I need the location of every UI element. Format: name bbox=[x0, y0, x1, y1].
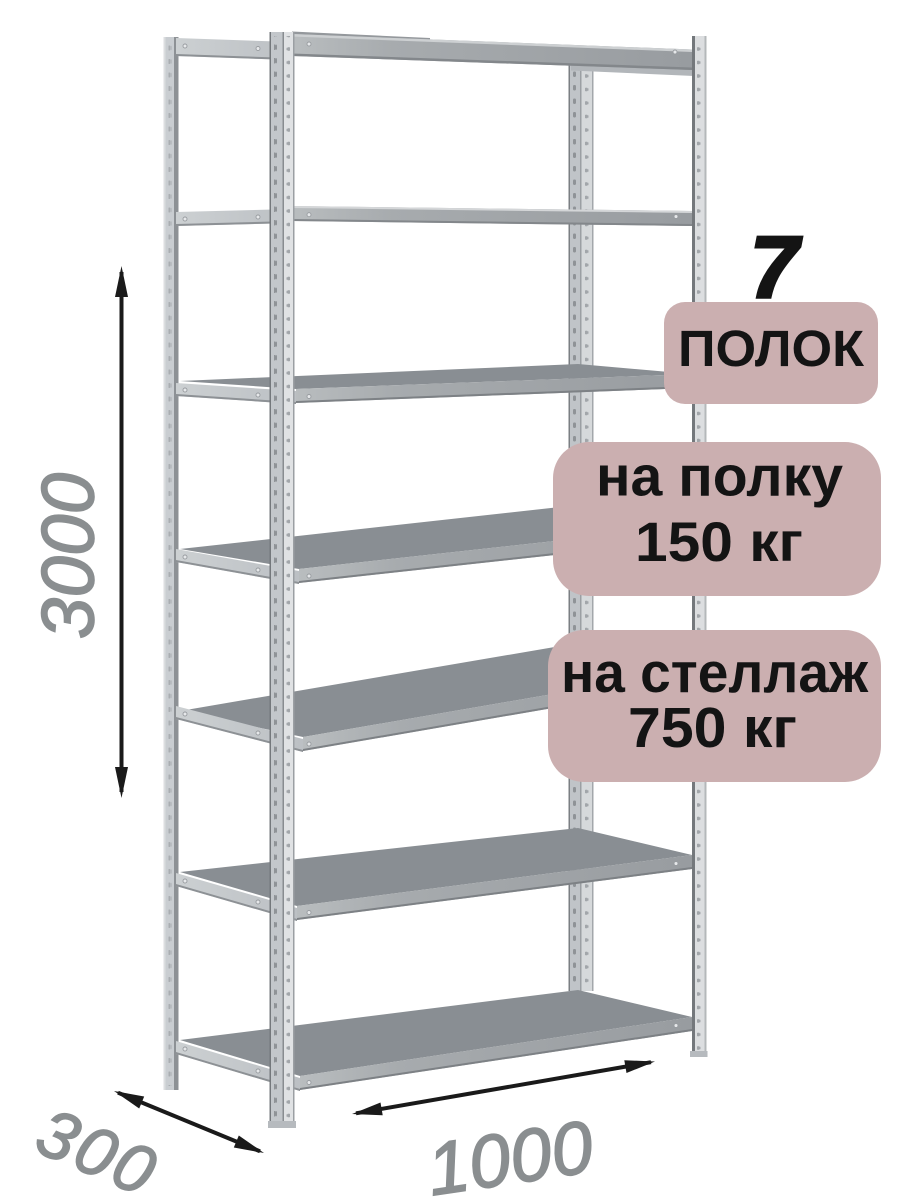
svg-text:на полку: на полку bbox=[596, 445, 843, 509]
svg-text:ПОЛОК: ПОЛОК bbox=[678, 320, 865, 377]
svg-text:150 кг: 150 кг bbox=[635, 510, 803, 573]
svg-text:750 кг: 750 кг bbox=[628, 696, 797, 760]
svg-text:300: 300 bbox=[26, 1094, 166, 1200]
svg-text:1000: 1000 bbox=[422, 1105, 598, 1200]
svg-text:3000: 3000 bbox=[27, 473, 110, 639]
svg-text:7: 7 bbox=[750, 219, 802, 316]
